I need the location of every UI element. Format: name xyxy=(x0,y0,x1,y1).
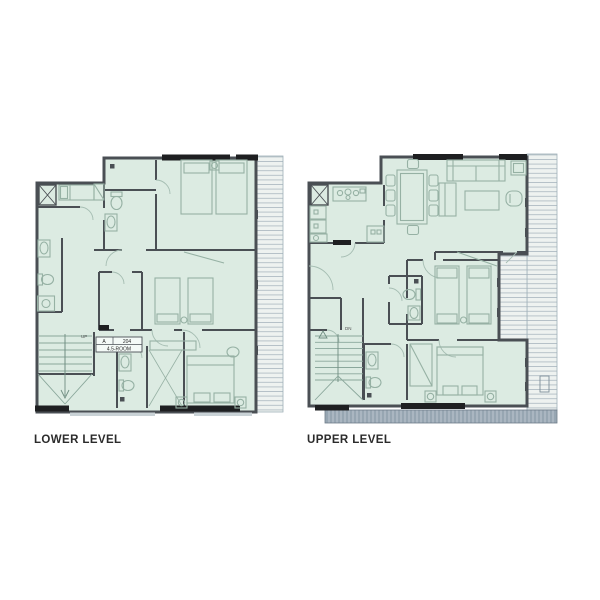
threshold xyxy=(70,413,155,417)
unit-tag-number: 204 xyxy=(123,339,132,345)
unit-tag: A 204 4.5-ROOM xyxy=(96,337,142,353)
lower-level-text: LOWER LEVEL xyxy=(34,434,121,446)
floor-plan-upper: DN xyxy=(307,148,565,428)
plan-label-upper: UPPER LEVEL xyxy=(307,430,565,448)
unit-tag-type: 4.5-ROOM xyxy=(107,347,131,353)
threshold xyxy=(194,413,252,417)
drain-symbol xyxy=(367,393,372,398)
upper-level-text: UPPER LEVEL xyxy=(307,434,391,446)
drain-symbol xyxy=(120,397,125,402)
upper-plan-drawing: DN xyxy=(307,148,565,428)
lower-plan-drawing: UP A 204 4.5-ROOM xyxy=(34,150,286,418)
walkway-strip xyxy=(325,410,557,423)
drain-symbol xyxy=(110,164,115,169)
stair-direction-label: UP xyxy=(81,334,87,339)
stair-direction-label: DN xyxy=(345,326,352,331)
drain-symbol xyxy=(414,279,419,284)
floor-plan-sheet: UP A 204 4.5-ROOM xyxy=(0,0,600,600)
plan-label-lower: LOWER LEVEL xyxy=(34,430,286,448)
balcony-lower xyxy=(256,156,283,412)
floor-plan-lower: UP A 204 4.5-ROOM xyxy=(34,150,286,418)
